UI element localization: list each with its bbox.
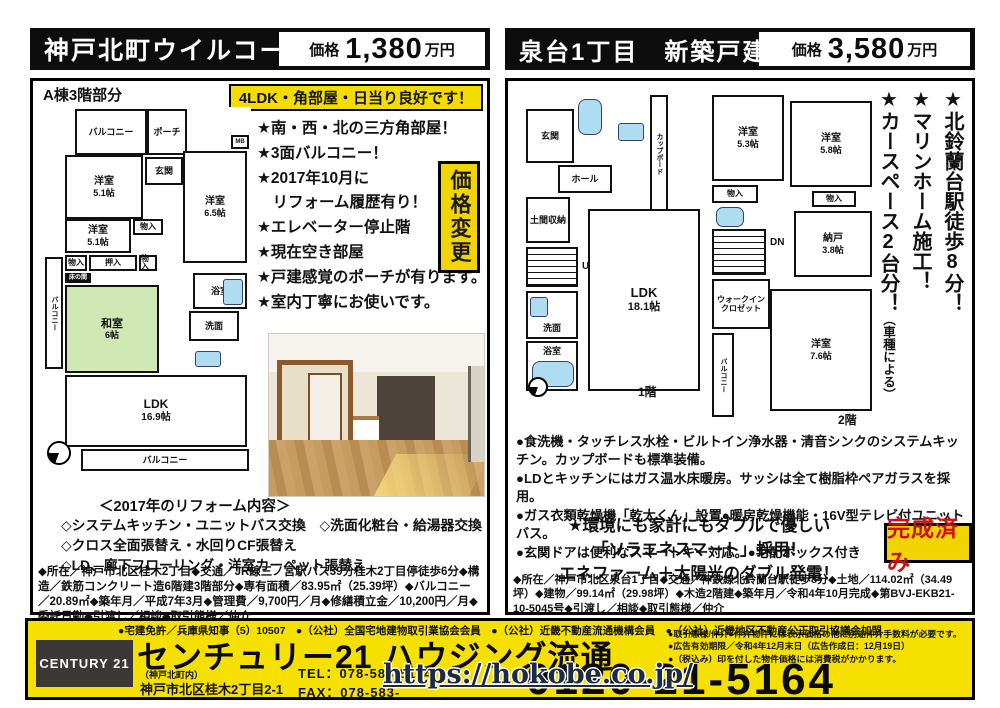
room-name: 和室 bbox=[101, 318, 123, 331]
right-listing-title: 泉台1丁目 新築戸建 bbox=[505, 32, 768, 67]
right-listing-header: 泉台1丁目 新築戸建 価格 3,580 万円 bbox=[505, 28, 975, 70]
room-wic: ウォークインクロゼット bbox=[712, 279, 770, 329]
bullet-item: ●LDとキッチンにはガス温水床暖房。サッシは全て樹脂枠ペアガラスを採用。 bbox=[516, 470, 968, 507]
left-floorplan: バルコニー ポーチ MB 玄関 洋室 5.1帖 洋室 6.5帖 物入 洋室 5.… bbox=[45, 107, 251, 475]
room-balcony-top: バルコニー bbox=[75, 109, 147, 155]
room-size: 5.3帖 bbox=[737, 139, 759, 149]
room-yoshitsu-3: 洋室 7.6帖 bbox=[770, 289, 872, 411]
catch-copy-vertical: ★北鈴蘭台駅徒歩8分！ ★マリンホーム施工！ ★カースペース2台分！（車種による… bbox=[872, 87, 968, 427]
stairs-up bbox=[526, 247, 578, 287]
room-name: 納戸 bbox=[823, 233, 843, 245]
price-unit: 万円 bbox=[425, 39, 455, 60]
room-balcony-bottom: バルコニー bbox=[81, 449, 249, 471]
reform-line: ◇クロス全面張替え・水回りCF張替え bbox=[61, 536, 487, 556]
reform-line: ◇システムキッチン・ユニットバス交換 ◇洗面化粧台・給湯器交換 bbox=[61, 516, 487, 536]
price-label: 価格 bbox=[792, 39, 822, 60]
closet: 物入 bbox=[139, 255, 157, 271]
closet: 物入 bbox=[712, 185, 758, 203]
photo-accent-wall bbox=[377, 376, 435, 442]
price-value: 3,580 bbox=[828, 33, 906, 66]
company-address: 神戸市北区桂木2丁目2-1 bbox=[140, 679, 283, 698]
room-yoshitsu-2: 洋室 5.8帖 bbox=[790, 101, 872, 187]
room-size: 18.1帖 bbox=[628, 301, 660, 314]
bullet-item: ●食洗機・タッチレス水栓・ビルトイン浄水器・清音シンクのシステムキッチン。カップ… bbox=[516, 433, 968, 470]
room-size: 3.8帖 bbox=[822, 245, 844, 255]
catch-line-note: （車種による） bbox=[881, 313, 895, 401]
toilet-icon bbox=[578, 99, 602, 135]
closet: 物入 bbox=[812, 191, 856, 207]
bathtub-icon bbox=[223, 279, 243, 305]
right-floorplan-2f: 洋室 5.3帖 洋室 5.8帖 物入 物入 DN 納戸 3.8帖 ウォークインク… bbox=[708, 89, 878, 425]
room-porch: ポーチ bbox=[147, 109, 187, 155]
room-washitsu: 和室 6帖 bbox=[65, 285, 159, 373]
room-name: 洋室 bbox=[738, 127, 758, 139]
catch-line: ★カースペース2台分！（車種による） bbox=[872, 87, 904, 427]
kitchen-sink-icon bbox=[618, 123, 644, 141]
room-yoshitsu-c: 洋室 5.1帖 bbox=[65, 219, 131, 253]
catch-line: ★北鈴蘭台駅徒歩8分！ bbox=[936, 87, 968, 427]
left-listing-header: 神戸北町ウイルコート 価格 1,380 万円 bbox=[30, 28, 490, 70]
room-doma: 土間収納 bbox=[526, 197, 570, 243]
room-wash: 洗面 bbox=[189, 311, 239, 341]
compass-icon bbox=[47, 441, 71, 465]
note-line: ●取引態様/仲介●仲介物件には表示価格の他に別途仲介手数料が必要です。 bbox=[668, 628, 974, 640]
eco-line: 「ソラエネスマート」採用！ bbox=[524, 539, 874, 563]
room-nando: 納戸 3.8帖 bbox=[794, 211, 872, 277]
catch-line-main: ★カースペース2台分！ bbox=[877, 87, 899, 313]
century21-logo: CENTURY 21 bbox=[36, 640, 133, 687]
interior-photo bbox=[268, 333, 485, 497]
price-value: 1,380 bbox=[345, 33, 423, 66]
catch-line: ★マリンホーム施工！ bbox=[904, 87, 936, 427]
room-name: 洋室 bbox=[205, 196, 225, 208]
toilet-icon bbox=[716, 207, 744, 227]
completed-badge: 完成済み bbox=[884, 523, 972, 563]
eco-line: ★環境にも家計にもダブルで優しい bbox=[524, 515, 874, 539]
room-entrance: 玄関 bbox=[145, 157, 183, 185]
room-ldk: LDK 18.1帖 bbox=[588, 209, 700, 391]
room-mb: MB bbox=[231, 135, 249, 149]
left-property-details: ◆所在／神戸市北区桂木2丁目◆交通／JR線三ノ宮駅バス39分桂木2丁目停徒歩6分… bbox=[38, 565, 482, 625]
price-label: 価格 bbox=[309, 39, 339, 60]
note-line: ●広告有効期限／令和4年12月末日（広告作成日：12月19日） bbox=[668, 640, 974, 652]
price-change-badge: 価格変更 bbox=[438, 161, 480, 273]
mirror-icon bbox=[530, 297, 548, 317]
price-unit: 万円 bbox=[907, 39, 937, 60]
room-ldk: LDK 16.9帖 bbox=[65, 375, 247, 447]
room-size: 5.1帖 bbox=[93, 188, 115, 198]
left-price-box: 価格 1,380 万円 bbox=[279, 32, 485, 66]
room-balcony: バルコニー bbox=[712, 333, 734, 417]
room-hall: ホール bbox=[558, 165, 612, 193]
room-name: LDK bbox=[631, 286, 658, 301]
stairs-down bbox=[712, 229, 766, 275]
watermark-url: https://hokobe.co.jp/ bbox=[383, 659, 693, 690]
sink-icon bbox=[195, 351, 221, 367]
oshiire: 押入 bbox=[89, 255, 137, 271]
stairs-down-label: DN bbox=[770, 237, 784, 248]
photo-window bbox=[468, 366, 484, 462]
room-name: 洋室 bbox=[94, 176, 114, 188]
room-cupboard: カップボード bbox=[650, 95, 668, 213]
room-name: LDK bbox=[144, 398, 169, 412]
right-floorplan-1f: 玄関 ホール カップボード 土間収納 UP 洗面 浴室 LDK 18.1帖 1階 bbox=[518, 89, 710, 399]
bullet-item: ★南・西・北の三方角部屋！ bbox=[257, 117, 495, 142]
left-listing-title: 神戸北町ウイルコート bbox=[30, 31, 314, 67]
bullet-item: ★室内丁寧にお使いです。 bbox=[257, 291, 495, 316]
room-yoshitsu-a: 洋室 5.1帖 bbox=[65, 155, 143, 219]
room-name: 洋室 bbox=[88, 225, 108, 237]
room-size: 5.1帖 bbox=[87, 237, 109, 247]
room-size: 7.6帖 bbox=[810, 351, 832, 361]
reform-title: ＜2017年のリフォーム内容＞ bbox=[99, 495, 487, 516]
room-size: 6帖 bbox=[105, 330, 119, 340]
right-price-box: 価格 3,580 万円 bbox=[759, 32, 970, 66]
floor-label-2f: 2階 bbox=[838, 411, 857, 428]
tokonoma: 床の間 bbox=[65, 273, 91, 283]
left-listing-panel: A棟3階部分 4LDK・角部屋・日当り良好です！ バルコニー ポーチ MB 玄関… bbox=[30, 78, 490, 615]
room-entrance: 玄関 bbox=[526, 109, 574, 163]
reform-block: ＜2017年のリフォーム内容＞ ◇システムキッチン・ユニットバス交換 ◇洗面化粧… bbox=[61, 495, 487, 576]
right-listing-panel: 玄関 ホール カップボード 土間収納 UP 洗面 浴室 LDK 18.1帖 1階… bbox=[505, 78, 975, 615]
room-name: 洋室 bbox=[811, 339, 831, 351]
compass-icon bbox=[528, 377, 548, 397]
room-name: 洋室 bbox=[821, 133, 841, 145]
room-yoshitsu-b: 洋室 6.5帖 bbox=[183, 151, 247, 263]
room-size: 6.5帖 bbox=[204, 208, 226, 218]
plan-caption: A棟3階部分 bbox=[43, 84, 122, 105]
closet: 物入 bbox=[133, 219, 163, 235]
room-size: 5.8帖 bbox=[820, 145, 842, 155]
highlight-banner: 4LDK・角部屋・日当り良好です！ bbox=[229, 84, 483, 111]
room-size: 16.9帖 bbox=[141, 412, 170, 424]
room-balcony-left: バルコニー bbox=[45, 257, 63, 369]
room-yoshitsu-1: 洋室 5.3帖 bbox=[712, 95, 784, 181]
floor-label-1f: 1階 bbox=[638, 383, 657, 400]
closet: 物入 bbox=[65, 255, 87, 271]
right-property-details: ◆所在／神戸市北区泉台1丁目◆交通／神鉄線北鈴蘭台駅徒歩8分◆土地／114.02… bbox=[513, 573, 967, 616]
